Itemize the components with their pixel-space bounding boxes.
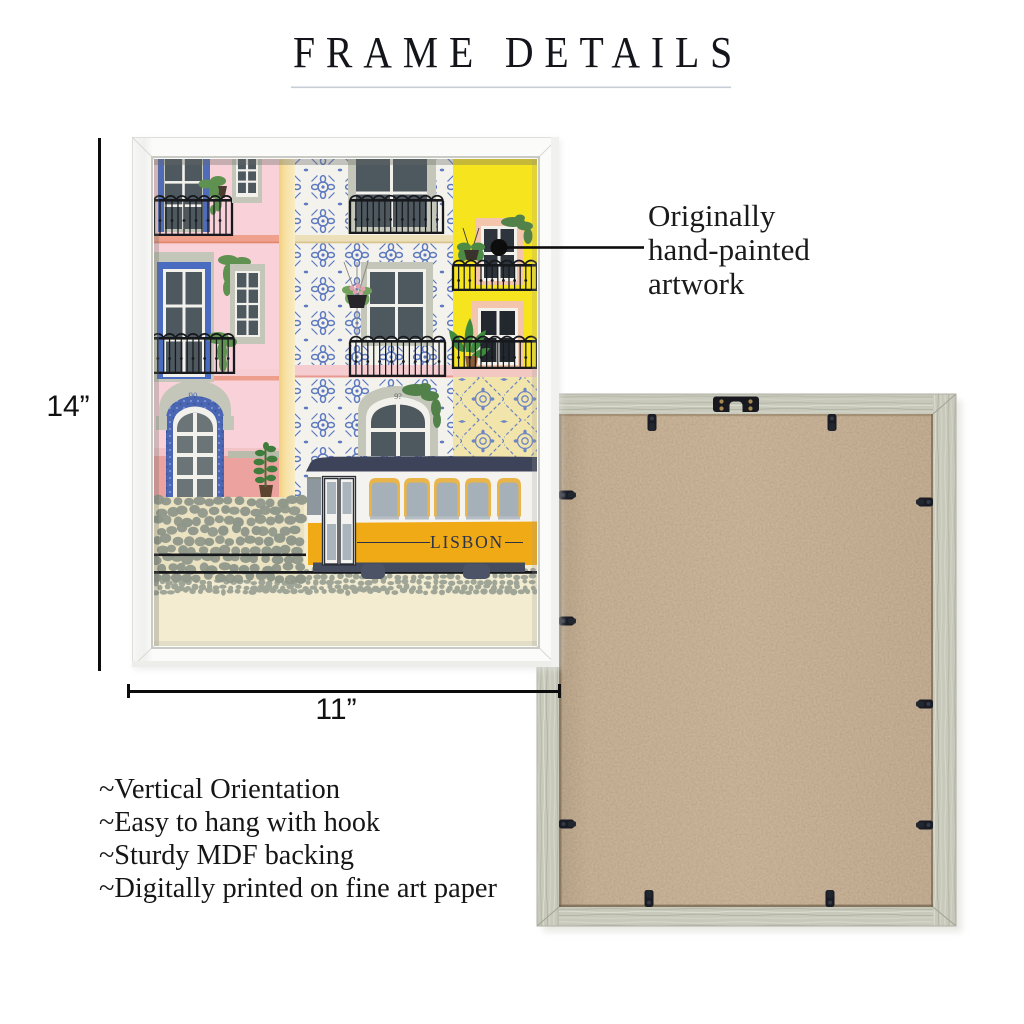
svg-text:FRAME DETAILS: FRAME DETAILS	[293, 28, 743, 77]
svg-text:~Sturdy MDF backing: ~Sturdy MDF backing	[99, 839, 354, 871]
svg-text:LISBON: LISBON	[430, 532, 504, 552]
svg-text:14”: 14”	[46, 390, 89, 423]
svg-text:hand-painted: hand-painted	[648, 232, 810, 267]
svg-text:9?: 9?	[394, 392, 402, 401]
svg-text:~Digitally printed on fine art: ~Digitally printed on fine art paper	[99, 872, 497, 904]
svg-text:artwork: artwork	[648, 266, 745, 301]
svg-text:~Easy to hang with hook: ~Easy to hang with hook	[99, 806, 380, 838]
svg-text:~Vertical Orientation: ~Vertical Orientation	[99, 773, 340, 805]
svg-text:90: 90	[189, 391, 199, 401]
svg-text:11”: 11”	[315, 693, 356, 726]
svg-text:Originally: Originally	[648, 198, 776, 233]
